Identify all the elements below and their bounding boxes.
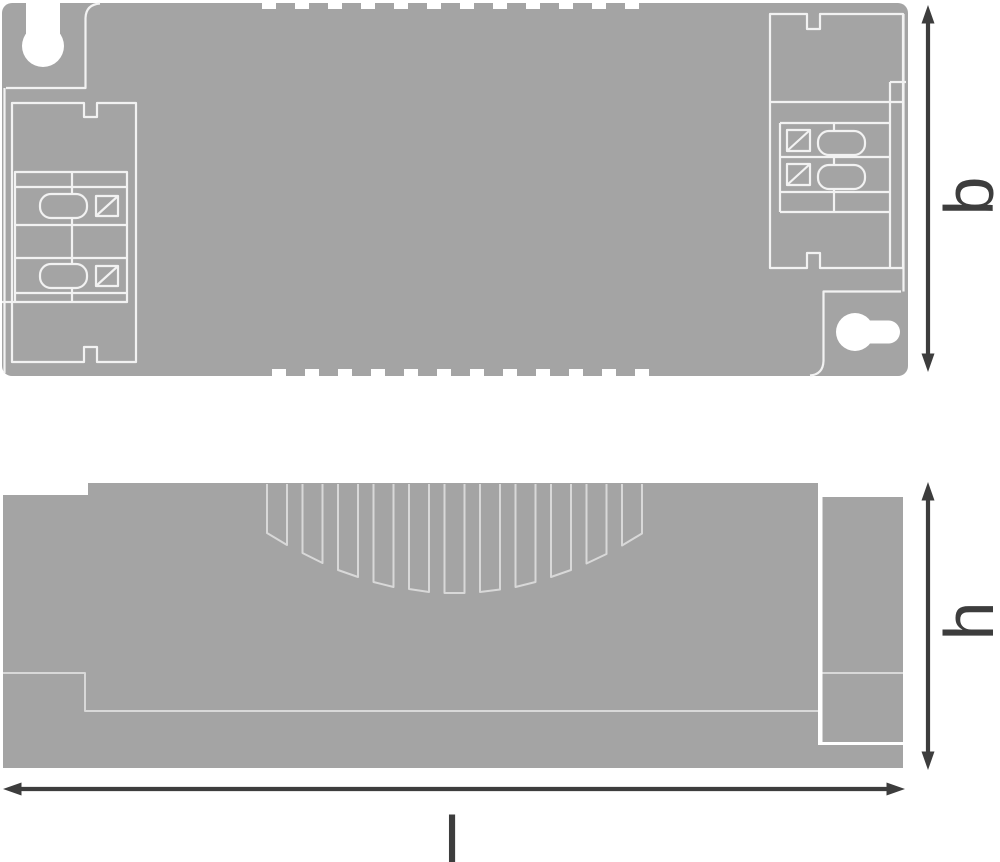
terminal-clamp [40, 264, 87, 288]
terminal-screw [96, 266, 118, 286]
dimension-label-h: h [934, 602, 1000, 641]
drawing-canvas [0, 0, 1000, 862]
top-view [2, 0, 908, 377]
terminal-screw [787, 164, 810, 185]
terminal-clamp [818, 165, 865, 189]
keyhole-slot-top-left [22, 0, 64, 67]
terminal-screw [96, 196, 118, 216]
dimension-label-l: l [444, 806, 460, 862]
side-view-terminal-section [823, 497, 904, 742]
terminal-clamp [40, 194, 87, 218]
side-view-body [3, 483, 903, 768]
dimension-drawing-page: b h l [0, 0, 1000, 862]
dimension-label-b: b [934, 177, 1000, 216]
dimension-arrow-l [3, 783, 905, 796]
top-view-body [2, 3, 908, 376]
terminal-clamp [818, 131, 865, 155]
terminal-screw [787, 130, 810, 151]
side-view [3, 483, 903, 768]
